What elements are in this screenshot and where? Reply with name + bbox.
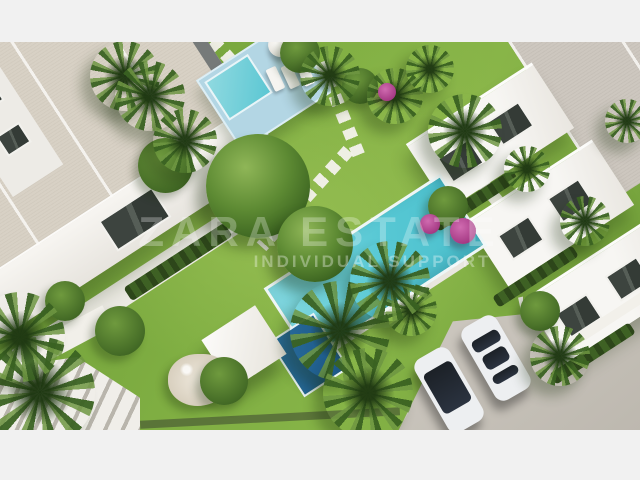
facade-window (497, 215, 545, 261)
facade-window (0, 80, 5, 115)
facade-window (98, 187, 171, 252)
palm-tree (350, 241, 430, 321)
palm-tree (560, 196, 610, 246)
bougainvillea (450, 218, 476, 244)
aerial-render-photo: ZARA ESTATE INDIVIDUAL SUPPORT (0, 42, 640, 430)
shrub (520, 291, 560, 331)
palm-tree (530, 326, 590, 386)
palm-tree (153, 109, 217, 173)
letterbox-top (0, 0, 640, 42)
palm-tree (406, 45, 454, 93)
shrub (200, 357, 248, 405)
page: { "scene": { "description": "Aerial 3D a… (0, 0, 640, 480)
facade-window (0, 122, 32, 157)
palm-tree (428, 94, 502, 168)
palm-tree (300, 46, 360, 106)
letterbox-bottom (0, 430, 640, 480)
bougainvillea (420, 214, 440, 234)
leafy-tree (277, 206, 353, 282)
shrub (95, 306, 145, 356)
bougainvillea (378, 83, 396, 101)
palm-tree (323, 348, 413, 430)
palm-tree (504, 146, 550, 192)
